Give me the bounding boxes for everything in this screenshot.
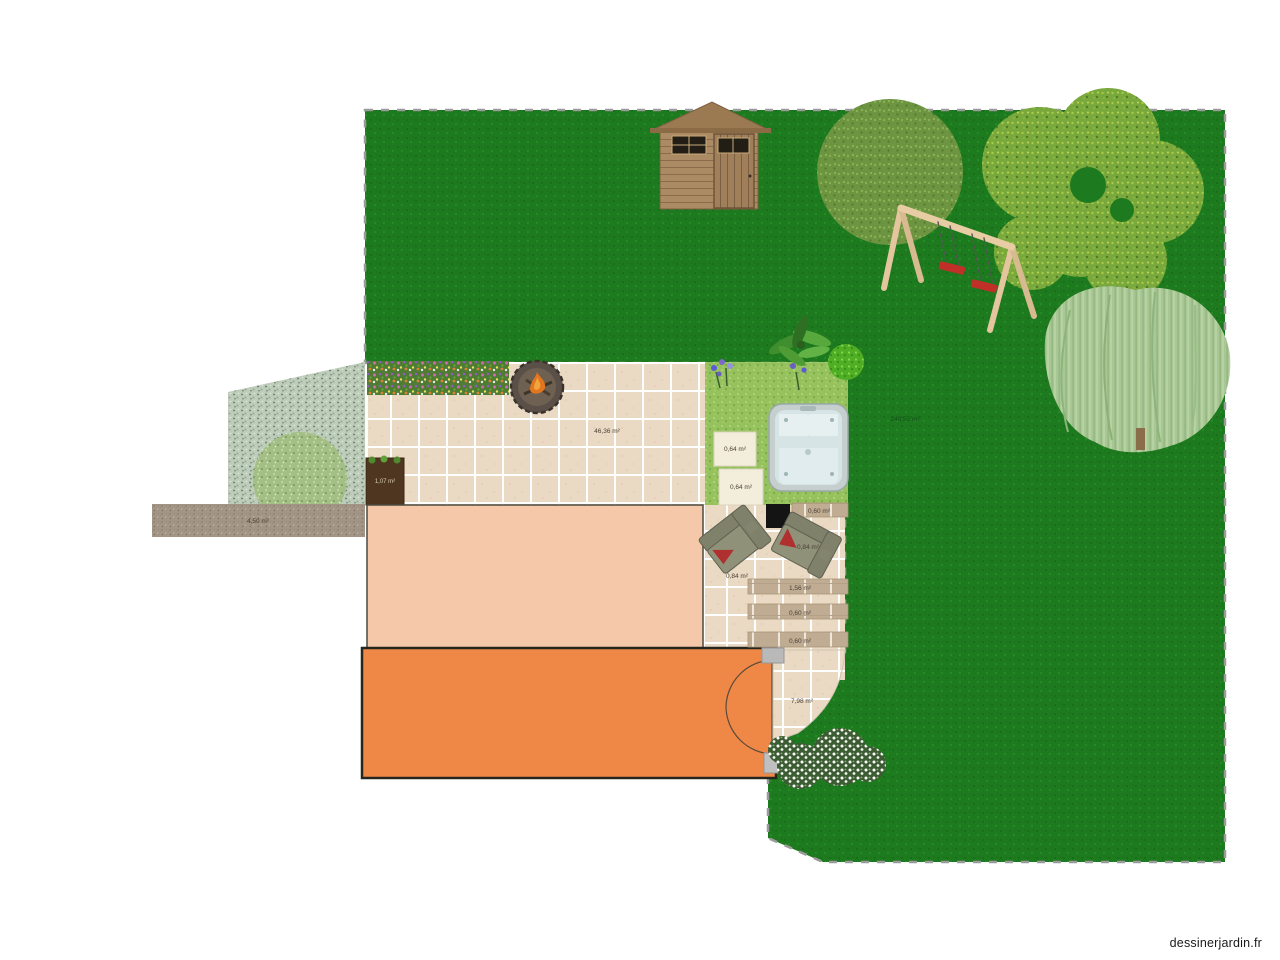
plank3-label: 0,60 m² bbox=[789, 610, 812, 617]
plank2-label: 1,56 m² bbox=[789, 585, 812, 592]
garden-plan-canvas: 240,52 m² bbox=[0, 0, 1280, 960]
shed-eave bbox=[650, 128, 771, 133]
flower-bed[interactable] bbox=[367, 361, 509, 395]
deck-plank-1[interactable]: 0,60 m² bbox=[792, 503, 848, 517]
stepping-stone-1[interactable]: 0,64 m² bbox=[714, 432, 756, 466]
pillar-top[interactable] bbox=[762, 648, 784, 663]
gravel-area-label: 4,50 m² bbox=[247, 518, 270, 525]
shed-door-knob bbox=[749, 175, 752, 178]
plan-drawing: 240,52 m² bbox=[0, 0, 1280, 960]
deck-plank-3[interactable]: 0,60 m² bbox=[748, 604, 848, 619]
planter-area-label: 1,07 m² bbox=[375, 479, 395, 485]
lawn-area-label: 240,52 m² bbox=[890, 416, 920, 423]
hot-tub-control bbox=[800, 406, 816, 411]
sofa1-label: 0,84 m² bbox=[726, 573, 749, 580]
terrace-building[interactable] bbox=[362, 648, 776, 778]
patio-area-label: 46,36 m² bbox=[594, 428, 620, 435]
deck-plank-2[interactable]: 1,56 m² bbox=[748, 579, 848, 594]
stone1-area-label: 0,64 m² bbox=[724, 446, 747, 453]
house-footprint[interactable] bbox=[367, 505, 703, 648]
gravel-path[interactable]: 4,50 m² bbox=[152, 504, 365, 537]
sofa2-label: 0,84 m² bbox=[797, 544, 820, 551]
plank1-label: 0,60 m² bbox=[808, 508, 831, 515]
bright-shrub[interactable] bbox=[828, 344, 864, 380]
deck-plank-4[interactable]: 0,60 m² bbox=[748, 632, 848, 647]
site-watermark: dessinerjardin.fr bbox=[1170, 936, 1262, 950]
willow-trunk bbox=[1136, 428, 1145, 450]
fire-pit[interactable] bbox=[511, 361, 563, 413]
planter-box[interactable]: 1,07 m² bbox=[366, 456, 404, 506]
hot-tub[interactable] bbox=[769, 404, 848, 491]
stone2-area-label: 0,64 m² bbox=[730, 484, 753, 491]
stepping-stone-2[interactable]: 0,64 m² bbox=[719, 469, 763, 505]
small-patio-area-label: 7,98 m² bbox=[791, 698, 814, 705]
plank4-label: 0,60 m² bbox=[789, 638, 812, 645]
